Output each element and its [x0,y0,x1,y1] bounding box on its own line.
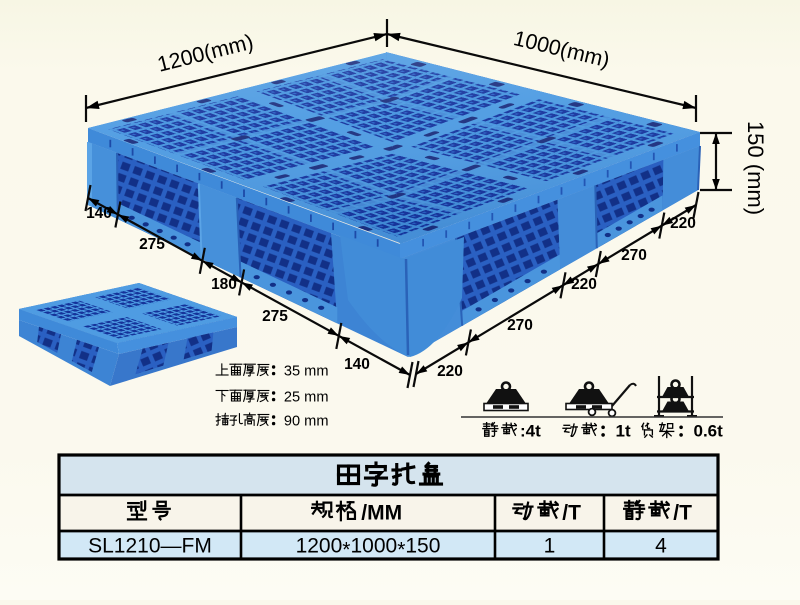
svg-text:4: 4 [655,535,667,558]
svg-text:/T: /T [673,502,692,525]
svg-text:/T: /T [562,502,581,525]
svg-text:1: 1 [544,535,556,558]
svg-text:220: 220 [571,276,597,293]
svg-text:150 (mm): 150 (mm) [743,121,768,215]
svg-text:SL1210—FM: SL1210—FM [88,535,212,558]
svg-text:180: 180 [211,276,237,293]
svg-text:270: 270 [621,247,647,264]
svg-text:25 mm: 25 mm [284,390,329,406]
svg-text:90 mm: 90 mm [284,414,329,430]
svg-text:220: 220 [670,215,696,232]
svg-text:140: 140 [86,205,112,222]
svg-text:0.6t: 0.6t [694,422,724,441]
svg-text:35 mm: 35 mm [284,364,329,380]
svg-text:1t: 1t [616,422,631,441]
svg-text:140: 140 [344,356,370,373]
svg-text:220: 220 [437,363,463,380]
svg-text:1200*1000*150: 1200*1000*150 [296,535,441,562]
svg-text:270: 270 [507,317,533,334]
svg-text:275: 275 [262,308,288,325]
svg-text:275: 275 [139,236,165,253]
svg-text:/MM: /MM [361,502,402,525]
svg-text::4t: :4t [520,422,541,441]
